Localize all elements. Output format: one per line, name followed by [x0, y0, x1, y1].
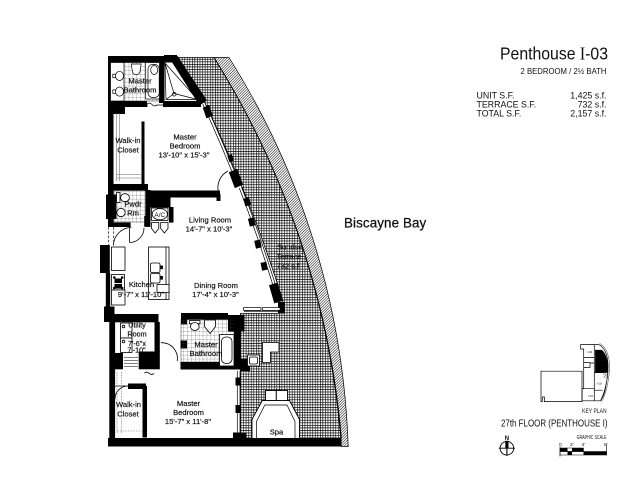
svg-text:Bedroom: Bedroom [173, 408, 204, 417]
svg-text:2 BEDROOM / 2½ BATH: 2 BEDROOM / 2½ BATH [521, 66, 607, 76]
svg-text:17'-4" x 10'-3": 17'-4" x 10'-3" [192, 290, 239, 299]
svg-text:Master: Master [177, 399, 201, 408]
svg-text:Sunrise: Sunrise [277, 243, 302, 252]
svg-text:I-02: I-02 [597, 382, 603, 386]
svg-text:GRAPHIC SCALE: GRAPHIC SCALE [577, 435, 607, 441]
svg-text:Closet: Closet [117, 146, 139, 155]
svg-text:15'-7" x 11'-8": 15'-7" x 11'-8" [165, 417, 211, 426]
svg-text:Master: Master [194, 340, 218, 349]
svg-text:Master: Master [173, 133, 197, 142]
svg-text:TOTAL S.F.: TOTAL S.F. [477, 109, 522, 119]
svg-text:13'-10" x 15'-3": 13'-10" x 15'-3" [159, 151, 210, 160]
svg-text:Pwdr: Pwdr [124, 200, 142, 209]
svg-text:27th FLOOR (PENTHOUSE I): 27th FLOOR (PENTHOUSE I) [501, 419, 608, 430]
svg-text:Kitchen: Kitchen [129, 280, 154, 289]
svg-text:732 s.f.: 732 s.f. [277, 261, 302, 270]
svg-text:Utility: Utility [128, 321, 146, 330]
svg-text:2': 2' [570, 442, 574, 448]
svg-text:Walk-in: Walk-in [116, 400, 141, 409]
svg-text:Bedroom: Bedroom [170, 142, 201, 151]
svg-text:Room: Room [127, 330, 146, 339]
svg-text:4': 4' [582, 442, 586, 448]
svg-text:Living Room: Living Room [189, 216, 231, 225]
svg-text:Bathroom: Bathroom [124, 86, 157, 95]
svg-text:2,157 s.f.: 2,157 s.f. [570, 109, 606, 119]
svg-text:Rm: Rm [127, 209, 139, 218]
svg-text:KEY PLAN: KEY PLAN [582, 408, 607, 415]
svg-text:Bathroom: Bathroom [190, 349, 223, 358]
svg-text:8': 8' [604, 442, 608, 448]
svg-text:I-03: I-03 [597, 360, 603, 364]
svg-text:Penthouse I-03: Penthouse I-03 [500, 43, 608, 63]
svg-text:14'-7" x 10'-3": 14'-7" x 10'-3" [186, 225, 233, 234]
svg-text:Dining Room: Dining Room [194, 281, 238, 290]
svg-text:Spa: Spa [270, 428, 284, 437]
svg-text:N: N [505, 435, 510, 442]
svg-text:9'-7" x 11'-10": 9'-7" x 11'-10" [118, 290, 164, 299]
svg-text:Master: Master [128, 77, 152, 86]
svg-text:Closet: Closet [117, 410, 139, 419]
svg-text:Biscayne Bay: Biscayne Bay [344, 216, 427, 231]
svg-text:Walk-in: Walk-in [115, 136, 140, 145]
svg-text:A/C: A/C [154, 212, 165, 219]
svg-text:I-01: I-01 [588, 394, 594, 398]
svg-text:0: 0 [559, 442, 562, 448]
svg-text:Terrace: Terrace [277, 252, 302, 261]
svg-text:7'-10": 7'-10" [127, 346, 146, 355]
svg-text:I-04: I-04 [587, 350, 593, 354]
